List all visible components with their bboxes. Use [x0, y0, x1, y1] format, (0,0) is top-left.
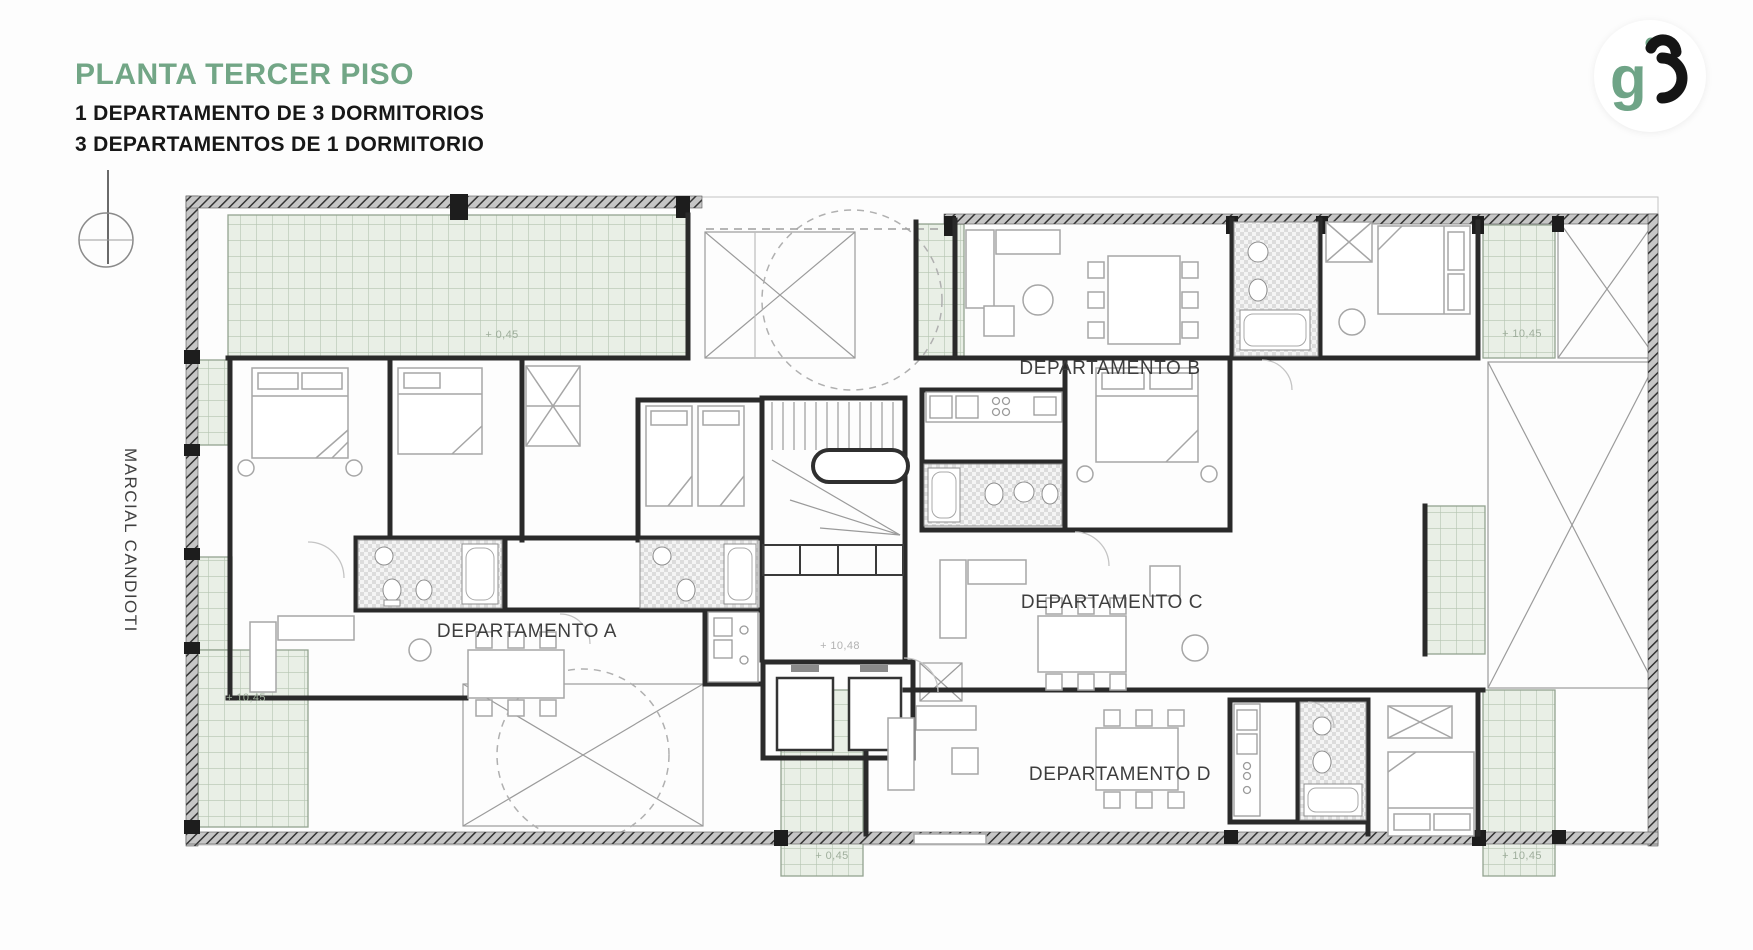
apartment-label-b: DEPARTAMENTO B	[1019, 358, 1200, 380]
logo-letter-c-icon	[1651, 40, 1682, 98]
page: PLANTA TERCER PISO 1 DEPARTAMENTO DE 3 D…	[0, 0, 1753, 950]
north-symbol	[79, 170, 133, 267]
apartment-label-d: DEPARTAMENTO D	[1029, 764, 1211, 786]
level-annotation: + 10,45	[1502, 850, 1542, 862]
level-annotation: + 10,48	[820, 640, 860, 652]
logo-graphic: g	[1604, 30, 1696, 122]
level-annotation: + 0,45	[815, 850, 848, 862]
subtitle-line-2: 3 DEPARTAMENTOS DE 1 DORMITORIO	[75, 133, 484, 157]
elevator-door-1	[791, 665, 819, 672]
level-annotation: + 0,45	[485, 329, 518, 341]
page-title: PLANTA TERCER PISO	[75, 58, 484, 92]
street-label: MARCIAL CANDIOTI	[120, 448, 140, 633]
header: PLANTA TERCER PISO 1 DEPARTAMENTO DE 3 D…	[75, 58, 484, 164]
company-logo: g	[1594, 20, 1706, 132]
level-annotation: + 10,45	[226, 692, 266, 704]
elevator-door-2	[860, 665, 888, 672]
level-annotation: + 10,45	[1502, 328, 1542, 340]
subtitle-line-1: 1 DEPARTAMENTO DE 3 DORMITORIOS	[75, 102, 484, 126]
corridor-railing	[763, 545, 903, 575]
stair-handrail	[813, 450, 908, 482]
elevator-car-1	[777, 678, 833, 750]
apartment-label-a: DEPARTAMENTO A	[437, 621, 617, 643]
stair-core	[763, 402, 908, 575]
logo-letter-g: g	[1610, 44, 1647, 111]
apartment-label-c: DEPARTAMENTO C	[1021, 592, 1203, 614]
